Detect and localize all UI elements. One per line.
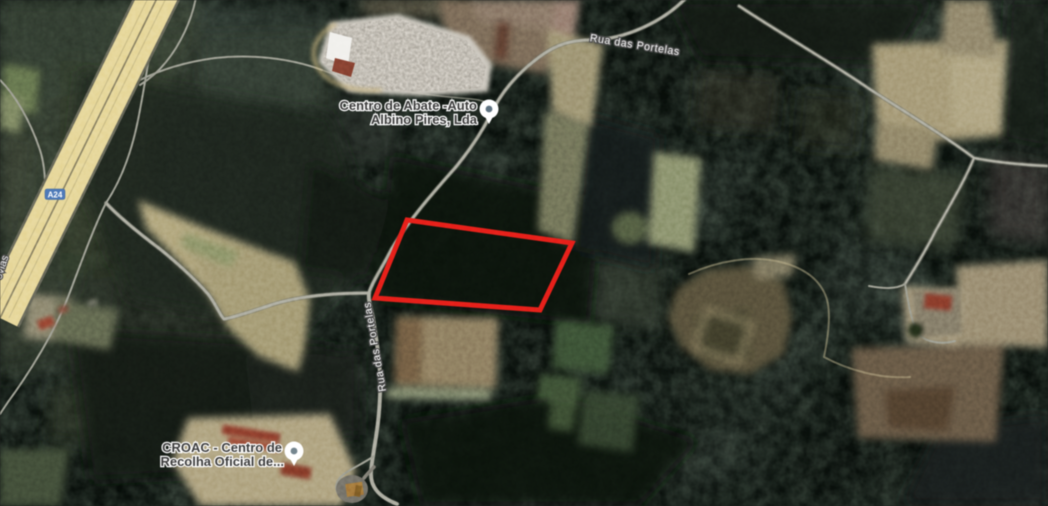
svg-text:Centro de Abate -Auto: Centro de Abate -Auto	[340, 98, 478, 113]
svg-text:Recolha Oficial de...: Recolha Oficial de...	[160, 454, 284, 469]
svg-text:CROAC - Centro de: CROAC - Centro de	[162, 440, 282, 455]
svg-text:Albino Pires, Lda: Albino Pires, Lda	[371, 112, 478, 127]
svg-text:A24: A24	[48, 190, 63, 199]
